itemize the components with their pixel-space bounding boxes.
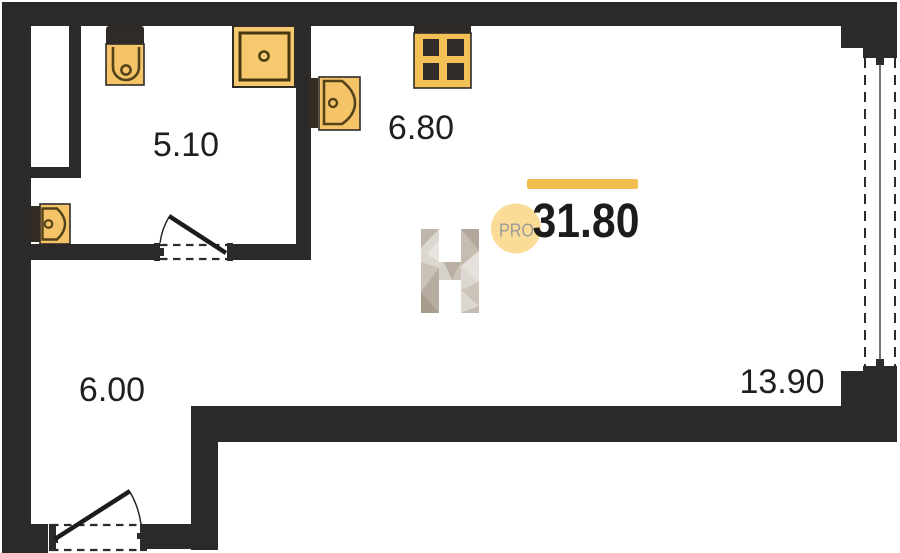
svg-text:5.10: 5.10 bbox=[153, 126, 219, 164]
svg-text:6.00: 6.00 bbox=[79, 371, 145, 409]
svg-text:6.80: 6.80 bbox=[388, 109, 454, 147]
svg-text:31.80: 31.80 bbox=[533, 195, 640, 248]
svg-text:PRO: PRO bbox=[499, 220, 534, 241]
svg-text:13.90: 13.90 bbox=[739, 363, 824, 401]
